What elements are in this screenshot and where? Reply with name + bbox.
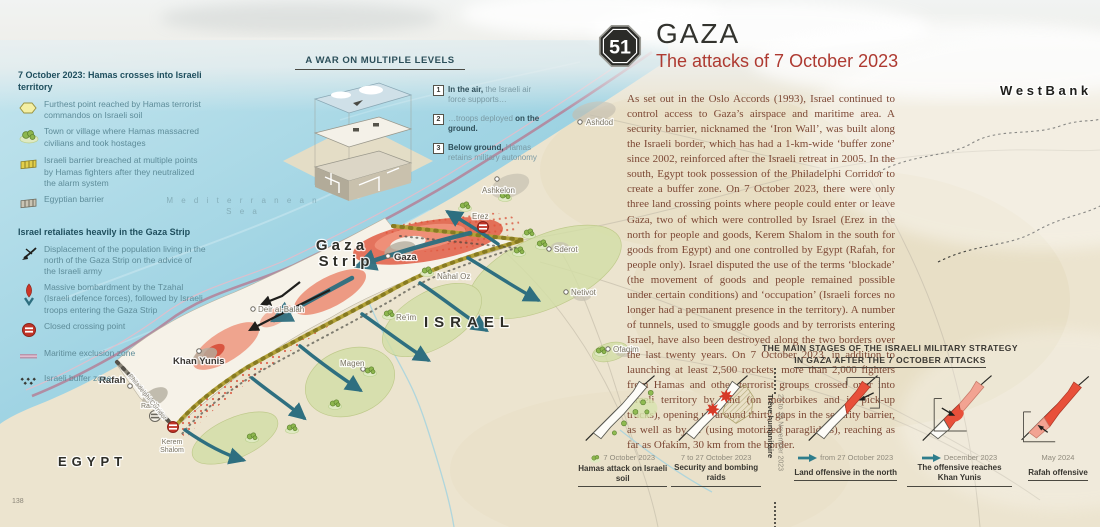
war-level-item: 2 …troops deployed on the ground. xyxy=(433,114,545,134)
deir-al-balah-label: Deir al-Balah xyxy=(258,305,304,314)
stage-2-map xyxy=(673,370,759,450)
magen-label: Magen xyxy=(340,359,364,368)
map-legend: 7 October 2023: Hamas crosses into Israe… xyxy=(18,70,206,397)
legend-title-israel: Israel retaliates heavily in the Gaza St… xyxy=(18,227,206,239)
legend-item: Israeli barrier breached at multiple poi… xyxy=(18,155,206,188)
sea-label-2: S e a xyxy=(226,207,260,216)
massacre-blob-icon xyxy=(590,454,601,463)
dotted-line xyxy=(774,368,784,394)
truce-date: 24 to 30 November 2023 xyxy=(775,394,783,502)
chapter-badge: 51 xyxy=(596,22,644,70)
erez-crossing xyxy=(478,222,489,233)
legend-item: Furthest point reached by Hamas terroris… xyxy=(18,99,206,121)
stage-3: from 27 October 2023 Land offensive in t… xyxy=(788,368,903,481)
stage-4-label: The offensive reaches Khan Yunis xyxy=(907,463,1012,487)
war-levels-title: A WAR ON MULTIPLE LEVELS xyxy=(295,55,465,70)
stage-5: May 2024 Rafah offensive xyxy=(1016,368,1100,481)
next-stage-arrow xyxy=(798,454,818,462)
page-title-block: 51 GAZA The attacks of 7 October 2023 xyxy=(596,20,898,72)
maritime-zone-icon xyxy=(18,348,44,368)
sderot-label: Sderot xyxy=(554,245,578,254)
stage-2: 7 to 27 October 2023 Security and bombin… xyxy=(671,368,760,487)
war-level-item: 1 In the air, the Israeli air force supp… xyxy=(433,85,545,105)
stage-3-label: Land offensive in the north xyxy=(794,468,897,481)
massacre-town-icon xyxy=(18,126,44,150)
stage-5-map xyxy=(1016,370,1100,450)
stage-5-label: Rafah offensive xyxy=(1028,468,1088,481)
legend-item: Egyptian barrier xyxy=(18,194,206,216)
page-subtitle: The attacks of 7 October 2023 xyxy=(656,51,898,72)
stage-1-map xyxy=(580,370,666,450)
israel-label: ISRAEL xyxy=(424,314,515,331)
stage-3-map xyxy=(803,370,889,450)
kerem-shalom-crossing xyxy=(168,422,179,433)
stages-title: THE MAIN STAGES OF THE ISRAELI MILITARY … xyxy=(688,342,1092,367)
war-levels-inset: A WAR ON MULTIPLE LEVELS xyxy=(283,55,545,205)
legend-item: Israeli buffer zone xyxy=(18,373,206,392)
next-stage-arrow xyxy=(922,454,942,462)
war-levels-diagram xyxy=(283,73,433,205)
legend-item: Closed crossing point xyxy=(18,321,206,343)
egypt-label: EGYPT xyxy=(58,454,127,469)
stage-1-label: Hamas attack on Israeli soil xyxy=(578,464,667,488)
kerem-shalom-label-2: Shalom xyxy=(160,447,184,454)
reim-label: Re'im xyxy=(396,313,417,322)
atlas-page: M e d i t e r r a n e a n S e a G a z a … xyxy=(0,0,1100,527)
netivot-label: Netivot xyxy=(571,288,597,297)
stage-1: 7 October 2023 Hamas attack on Israeli s… xyxy=(578,368,667,487)
furthest-point-icon xyxy=(18,99,44,121)
svg-text:51: 51 xyxy=(609,37,631,59)
legend-item: Town or village where Hamas massacred ci… xyxy=(18,126,206,150)
closed-crossing-icon xyxy=(18,321,44,343)
legend-item: Displacement of the population living in… xyxy=(18,244,206,277)
humanitarian-truce-divider: Trêve humanitaire 24 to 30 November 2023 xyxy=(765,368,784,527)
displacement-arrow-icon xyxy=(18,244,44,277)
gaza-city-label: Gaza xyxy=(394,252,417,263)
stage-4: December 2023 The offensive reaches Khan… xyxy=(907,368,1012,487)
legend-item: Massive bombardment by the Tzahal (Israe… xyxy=(18,282,206,315)
gaza-strip-label-1: G a z a xyxy=(316,237,365,254)
egyptian-barrier-icon xyxy=(18,194,44,216)
air-layer xyxy=(315,83,411,113)
buffer-zone-icon xyxy=(18,373,44,392)
bombardment-arrow-icon xyxy=(18,282,44,315)
stages-panel: THE MAIN STAGES OF THE ISRAELI MILITARY … xyxy=(578,342,1100,514)
legend-item: Maritime exclusion zone xyxy=(18,348,206,368)
war-levels-list: 1 In the air, the Israeli air force supp… xyxy=(433,85,545,172)
page-number: 138 xyxy=(12,498,24,505)
israeli-barrier-icon xyxy=(18,155,44,188)
page-title: GAZA xyxy=(656,20,898,48)
war-level-item: 3 Below ground, Hamas retains military a… xyxy=(433,143,545,163)
legend-title-hamas: 7 October 2023: Hamas crosses into Israe… xyxy=(18,70,206,93)
dotted-line xyxy=(774,502,784,527)
kerem-shalom-label-1: Kerem xyxy=(162,439,183,446)
stage-4-map xyxy=(917,370,1003,450)
stage-2-label: Security and bombing raids xyxy=(671,463,760,487)
gaza-strip-label-2: S t r i p xyxy=(319,253,370,270)
truce-label: Trêve humanitaire xyxy=(766,394,775,502)
ashdod-label: Ashdod xyxy=(586,118,613,127)
erez-label: Erez xyxy=(472,212,488,221)
west-bank-label: W e s t B a n k xyxy=(1000,83,1089,98)
nahal-oz-label: Nahal Oz xyxy=(437,272,470,281)
